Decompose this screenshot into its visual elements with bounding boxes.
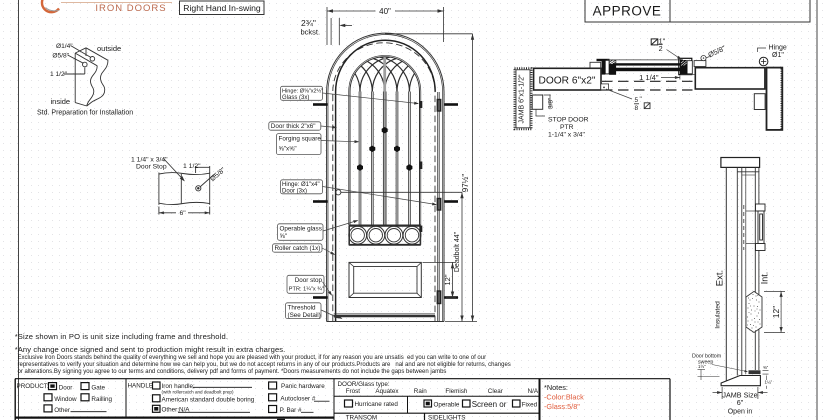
svg-text:Int.: Int. [760, 272, 770, 285]
svg-text:⅝": ⅝" [280, 233, 288, 240]
svg-text:6": 6" [180, 210, 187, 217]
svg-text:2: 2 [659, 44, 663, 53]
svg-text:Aquatex: Aquatex [375, 388, 399, 395]
svg-text:Ø5/8": Ø5/8" [707, 43, 728, 59]
svg-text:1 1/4": 1 1/4" [639, 73, 659, 82]
svg-text:12": 12" [771, 306, 781, 318]
svg-text:Ø5/8": Ø5/8" [209, 166, 227, 183]
svg-text:Threshold: Threshold [288, 304, 316, 311]
svg-text:6": 6" [737, 398, 744, 407]
svg-text:PTR: PTR [560, 124, 574, 131]
svg-text:IRON DOORS: IRON DOORS [95, 3, 166, 14]
svg-text:⅜": ⅜" [763, 365, 769, 370]
svg-text:American standard double borin: American standard double boring [162, 396, 255, 403]
svg-text:APPROVE: APPROVE [593, 4, 662, 19]
svg-text:Open in: Open in [728, 409, 753, 416]
svg-text:Rain: Rain [414, 388, 427, 395]
svg-text:1½": 1½" [698, 364, 706, 369]
svg-text:TRANSOM: TRANSOM [346, 414, 378, 420]
svg-text:Autocloser #: Autocloser # [280, 396, 315, 403]
svg-text:Hinge: Ø⅝"x2½": Hinge: Ø⅝"x2½" [282, 88, 323, 95]
svg-text:Ø5/8": Ø5/8" [52, 53, 69, 60]
svg-text:40": 40" [379, 7, 391, 16]
svg-text:Insulated: Insulated [715, 301, 722, 329]
svg-text:*Any change once signed and se: *Any change once signed and sent to prod… [15, 345, 286, 354]
svg-text:Roller catch (1x): Roller catch (1x) [275, 245, 321, 252]
svg-text:97½": 97½" [461, 174, 470, 193]
svg-text:*Size shown in PO is unit size: *Size shown in PO is unit size including… [15, 332, 228, 341]
svg-text:Fixed: Fixed [522, 402, 538, 409]
svg-text:-Glass:5/8": -Glass:5/8" [544, 402, 580, 411]
svg-text:Window: Window [54, 396, 77, 403]
svg-text:representatives to verify your: representatives to verify your situation… [18, 362, 511, 368]
svg-text:DOOR 6"x2": DOOR 6"x2" [538, 76, 595, 87]
svg-text:STOP DOOR: STOP DOOR [548, 117, 589, 124]
svg-text:Flemish: Flemish [445, 388, 468, 395]
svg-text:1 1/4" x 3/4": 1 1/4" x 3/4" [131, 156, 168, 163]
svg-text:5: 5 [635, 97, 639, 104]
svg-text:Operable: Operable [434, 402, 460, 409]
svg-text:P. Bar #: P. Bar # [280, 407, 302, 414]
svg-text:Door: Door [59, 385, 73, 392]
svg-text:Ext.: Ext. [715, 270, 726, 286]
svg-text:Hinge: Ø1"x4": Hinge: Ø1"x4" [282, 182, 320, 188]
svg-text:PRODUCT:: PRODUCT: [17, 383, 49, 390]
svg-text:SIDELIGHTS: SIDELIGHTS [428, 414, 465, 420]
svg-text:Panic hardware: Panic hardware [281, 383, 325, 390]
svg-text:or alterations.By signing you: or alterations.By signing you agree to o… [18, 369, 447, 375]
svg-text:Glass (3x): Glass (3x) [282, 95, 309, 101]
svg-text:12": 12" [443, 274, 452, 285]
svg-text:Std. Preparation for Installat: Std. Preparation for Installation [37, 110, 133, 117]
svg-text:Ø1/4": Ø1/4" [56, 43, 73, 50]
svg-text:Other: Other [54, 407, 70, 414]
svg-text:Forging square: Forging square [279, 136, 322, 143]
svg-text:Gate: Gate [91, 385, 105, 392]
svg-text:⅝"x⅝": ⅝"x⅝" [279, 146, 297, 153]
svg-text:Ø1": Ø1" [772, 52, 784, 59]
svg-text:Hurricane rated: Hurricane rated [355, 401, 399, 408]
svg-text:Railling: Railling [91, 396, 112, 403]
svg-text:": " [640, 96, 643, 103]
svg-text:Frost: Frost [346, 388, 361, 395]
svg-text:*Notes:: *Notes: [544, 383, 568, 392]
svg-text:Clear: Clear [488, 388, 503, 395]
svg-text:Operable glass: Operable glass [280, 226, 322, 233]
svg-text:inside: inside [51, 97, 71, 106]
svg-text:DOOR/Glass type:: DOOR/Glass type: [338, 381, 390, 388]
svg-text:Deadbolt 44": Deadbolt 44" [454, 231, 461, 272]
svg-text:Door thick 2"x6": Door thick 2"x6" [271, 123, 316, 130]
svg-text:Right Hand In-swing: Right Hand In-swing [183, 3, 261, 13]
svg-text:1 1/2": 1 1/2" [50, 71, 68, 78]
svg-text:1¼": 1¼" [765, 380, 773, 385]
svg-text:N/A: N/A [528, 388, 539, 395]
svg-text:Other:: Other: [162, 407, 180, 414]
svg-text:JAMB 6"x1-1/2": JAMB 6"x1-1/2" [519, 74, 526, 123]
svg-text:Door Stop: Door Stop [136, 163, 167, 170]
svg-text:2¾": 2¾" [301, 18, 316, 28]
svg-text:Door stop: Door stop [295, 277, 323, 284]
svg-text:HANDLE: HANDLE [128, 383, 154, 390]
svg-text:Exclusive Iron Doors stands be: Exclusive Iron Doors stands behind the q… [18, 355, 487, 361]
svg-text:bckst.: bckst. [301, 28, 321, 37]
svg-text:1 1/2": 1 1/2" [183, 163, 201, 170]
svg-text:PTR: 1¼"x ¾": PTR: 1¼"x ¾" [289, 286, 324, 292]
svg-text:(with rollercatch and deadbolt: (with rollercatch and deadbolt prep) [162, 390, 234, 395]
svg-text:3/8": 3/8" [548, 97, 555, 109]
svg-text:(See Detail): (See Detail) [288, 312, 321, 319]
svg-text:outside: outside [97, 44, 121, 53]
svg-text:-Color:Black: -Color:Black [544, 393, 584, 402]
svg-text:Door (3x): Door (3x) [282, 189, 307, 195]
svg-text:8: 8 [635, 105, 639, 112]
svg-text:Screen or: Screen or [472, 400, 507, 409]
svg-text:Hinge: Hinge [769, 45, 787, 52]
svg-text:1-1/4" x 3/4": 1-1/4" x 3/4" [548, 132, 586, 139]
